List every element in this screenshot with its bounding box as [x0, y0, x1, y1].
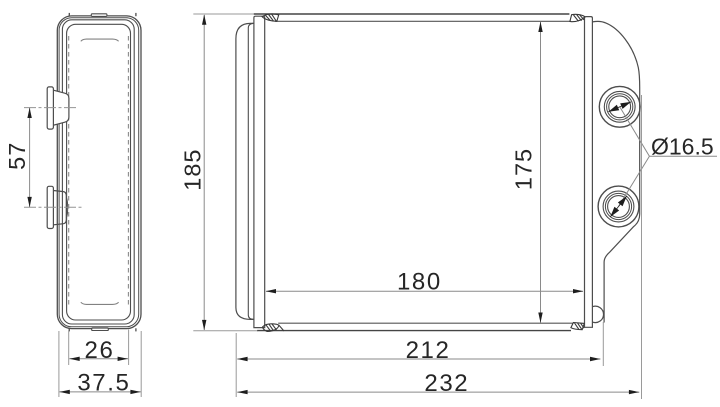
- svg-text:180: 180: [397, 268, 442, 295]
- svg-text:232: 232: [424, 370, 469, 397]
- svg-text:212: 212: [406, 337, 451, 364]
- svg-text:57: 57: [4, 142, 30, 170]
- svg-text:175: 175: [511, 148, 537, 190]
- svg-text:26: 26: [85, 337, 115, 364]
- svg-text:185: 185: [180, 148, 206, 190]
- svg-text:Ø16.5: Ø16.5: [651, 134, 714, 160]
- svg-text:37.5: 37.5: [77, 370, 130, 397]
